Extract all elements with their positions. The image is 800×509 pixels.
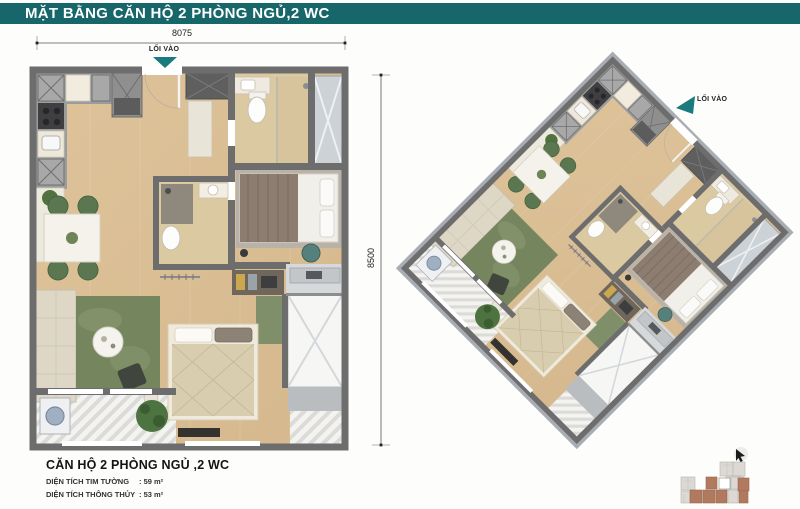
info-row-thong-thuy: DIỆN TÍCH THÔNG THỦY : 53 m² [46,490,296,499]
header-banner: MẶT BẰNG CĂN HỘ 2 PHÒNG NGỦ,2 WC [0,3,800,24]
dimension-height-label: 8500 [366,238,378,278]
entry-label-3d: LỐI VÀO [697,96,727,103]
entry-arrow-3d-icon [676,96,695,114]
info-value: : 53 m² [139,490,163,499]
info-value: : 59 m² [139,477,163,486]
apartment-info: CĂN HỘ 2 PHÒNG NGỦ ,2 WC DIỆN TÍCH TIM T… [46,458,296,499]
floorplan-core [33,65,345,447]
info-label: DIỆN TÍCH TIM TƯỜNG [46,477,139,486]
plans-graphic [0,0,800,509]
page: MẶT BẰNG CĂN HỘ 2 PHÒNG NGỦ,2 WC 8075 85… [0,0,800,509]
dimension-width-label: 8075 [157,28,207,38]
page-title: MẶT BẰNG CĂN HỘ 2 PHÒNG NGỦ,2 WC [0,3,800,24]
cursor-icon [734,447,748,462]
entry-label-2d: LỐI VÀO [138,46,190,53]
floorplan-3d [396,51,794,449]
key-plan [681,447,749,503]
info-label: DIỆN TÍCH THÔNG THỦY [46,490,139,499]
apartment-info-title: CĂN HỘ 2 PHÒNG NGỦ ,2 WC [46,458,296,472]
info-row-tim-tuong: DIỆN TÍCH TIM TƯỜNG : 59 m² [46,477,296,486]
